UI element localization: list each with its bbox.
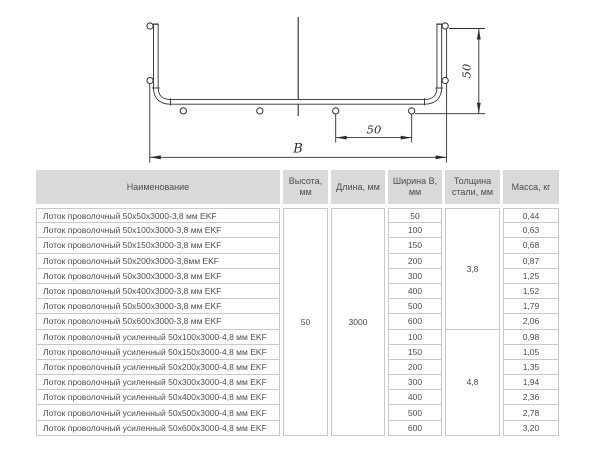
cell-mass: 0,98 [503, 330, 559, 345]
cell-mass: 1,94 [503, 375, 559, 390]
cell-mass: 0,68 [503, 238, 559, 253]
cell-mass: 0,87 [503, 254, 559, 269]
cell-width: 300 [388, 375, 442, 390]
header-thickness: Толщина стали, мм [445, 170, 500, 204]
header-mass: Масса, кг [503, 170, 559, 204]
catalog-page: B 50 50 Наименование Высота, мм Длина, м… [0, 0, 600, 450]
cell-width: 600 [388, 314, 442, 329]
cell-width: 150 [388, 345, 442, 360]
spec-table-body: Лоток проволочный 50х50х3000-3,8 мм EKF … [36, 208, 559, 436]
cell-width: 200 [388, 254, 442, 269]
cell-mass: 1,79 [503, 299, 559, 314]
cell-mass: 1,35 [503, 360, 559, 375]
cell-width: 100 [388, 330, 442, 345]
tray-cross-section-drawing: B 50 50 [0, 0, 600, 168]
header-width: Ширина B, мм [388, 170, 442, 204]
header-length: Длина, мм [331, 170, 385, 204]
cell-name: Лоток проволочный 50х200х3000-3,8мм EKF [36, 254, 280, 269]
dimension-arrows [150, 29, 481, 160]
cell-mass: 0,63 [503, 223, 559, 238]
cell-mass: 1,52 [503, 284, 559, 299]
header-name: Наименование [36, 170, 280, 204]
cell-thickness-merged: 4,8 [445, 330, 500, 436]
dimension-lines [150, 29, 479, 158]
cell-name: Лоток проволочный усиленный 50х100х3000-… [36, 330, 280, 345]
cell-mass: 0,44 [503, 208, 559, 223]
cell-name: Лоток проволочный 50х600х3000-3,8 мм EKF [36, 314, 280, 329]
cell-name: Лоток проволочный 50х300х3000-3,8 мм EKF [36, 269, 280, 284]
cell-name: Лоток проволочный усиленный 50х600х3000-… [36, 421, 280, 436]
cell-name: Лоток проволочный усиленный 50х300х3000-… [36, 375, 280, 390]
cell-name: Лоток проволочный усиленный 50х150х3000-… [36, 345, 280, 360]
cell-name: Лоток проволочный 50х50х3000-3,8 мм EKF [36, 208, 280, 223]
cell-length-merged: 3000 [331, 208, 385, 436]
cell-name: Лоток проволочный усиленный 50х200х3000-… [36, 360, 280, 375]
cell-name: Лоток проволочный усиленный 50х500х3000-… [36, 405, 280, 420]
tray-profile [152, 24, 443, 106]
cell-mass: 1,05 [503, 345, 559, 360]
dim-label-overall-width: B [292, 142, 303, 157]
cell-mass: 2,06 [503, 314, 559, 329]
cell-mass: 1,25 [503, 269, 559, 284]
cell-width: 200 [388, 360, 442, 375]
dim-label-side-height: 50 [460, 64, 474, 79]
header-height: Высота, мм [283, 170, 328, 204]
cell-width: 150 [388, 238, 442, 253]
cell-name: Лоток проволочный 50х100х3000-3,8 мм EKF [36, 223, 280, 238]
cell-width: 100 [388, 223, 442, 238]
cell-mass: 2,78 [503, 405, 559, 420]
cell-thickness-merged: 3,8 [445, 208, 500, 330]
dim-label-wire-spacing: 50 [367, 123, 382, 137]
cell-name: Лоток проволочный 50х500х3000-3,8 мм EKF [36, 299, 280, 314]
cell-height-merged: 50 [283, 208, 328, 436]
cell-width: 400 [388, 390, 442, 405]
cell-name: Лоток проволочный 50х150х3000-3,8 мм EKF [36, 238, 280, 253]
cell-width: 500 [388, 405, 442, 420]
cell-width: 400 [388, 284, 442, 299]
cell-width: 600 [388, 421, 442, 436]
spec-table-header: Наименование Высота, мм Длина, мм Ширина… [36, 170, 559, 204]
cell-mass: 3,20 [503, 421, 559, 436]
cell-width: 50 [388, 208, 442, 223]
cell-width: 300 [388, 269, 442, 284]
cell-name: Лоток проволочный усиленный 50х400х3000-… [36, 390, 280, 405]
cell-mass: 2,36 [503, 390, 559, 405]
cell-name: Лоток проволочный 50х400х3000-3,8 мм EKF [36, 284, 280, 299]
cell-width: 500 [388, 299, 442, 314]
